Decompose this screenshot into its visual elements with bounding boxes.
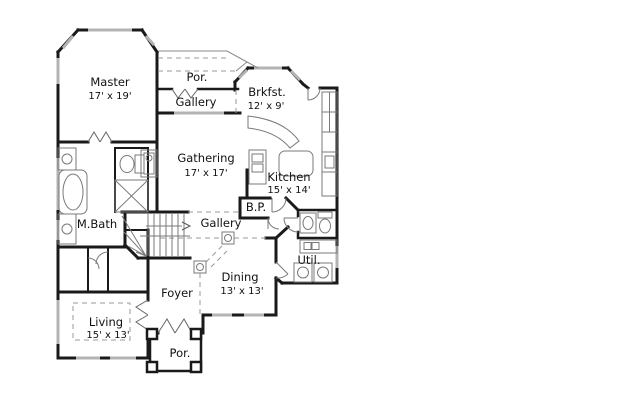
room-label-porch-bottom: Por. <box>170 346 191 360</box>
room-label-gathering: Gathering <box>177 151 234 165</box>
room-dims-gathering: 17' x 17' <box>184 168 227 179</box>
door-front-entry <box>158 319 192 333</box>
room-label-foyer: Foyer <box>161 286 193 300</box>
dashed-dining-arch <box>206 246 227 267</box>
room-dims-breakfast: 12' x 9' <box>248 101 285 112</box>
window-living <box>58 300 136 358</box>
powder-sink-icon <box>300 213 316 233</box>
room-label-living: Living <box>89 315 123 329</box>
door-breakfast-exterior <box>308 88 320 100</box>
door-closet <box>88 252 108 269</box>
room-dims-living: 15' x 13' <box>86 330 129 341</box>
wall-stairs <box>122 212 190 258</box>
kitchen-cabinets <box>322 92 337 196</box>
porch-top-outline <box>158 51 258 71</box>
door-kitchen-hall <box>272 198 286 212</box>
door-bp <box>268 218 279 229</box>
room-label-master: Master <box>90 75 130 89</box>
toilet-icon-powder <box>318 212 332 233</box>
door-utility <box>276 262 288 278</box>
room-label-dining: Dining <box>221 270 258 284</box>
porch-roof-lines <box>158 51 258 71</box>
room-label-gallery-mid: Gallery <box>201 216 242 230</box>
kitchen-range-sink <box>249 150 266 184</box>
vanity-sink-icon <box>58 148 76 244</box>
utility-counter <box>300 240 337 253</box>
stairs <box>122 214 190 256</box>
room-dims-kitchen: 15' x 14' <box>267 185 310 196</box>
room-dims-dining: 13' x 13' <box>220 286 263 297</box>
bathtub-icon <box>59 170 87 214</box>
kitchen-curved-counter <box>248 116 299 148</box>
room-label-breakfast: Brkfst. <box>248 85 285 99</box>
room-label-gallery-top: Gallery <box>176 95 217 109</box>
wall-closet-dividers <box>88 230 148 292</box>
room-label-utility: Util. <box>298 253 321 267</box>
wall-dining-bottom <box>203 315 276 333</box>
room-dims-master: 17' x 19' <box>88 91 131 102</box>
wall-master-bay <box>58 30 157 52</box>
floor-plan-canvas: Master 17' x 19' Por. Gallery Brkfst. 12… <box>0 0 620 415</box>
room-label-porch-top: Por. <box>187 70 208 84</box>
door-master-double <box>88 132 112 142</box>
room-label-kitchen: Kitchen <box>267 170 310 184</box>
floor-plan-svg: Master 17' x 19' Por. Gallery Brkfst. 12… <box>0 0 620 415</box>
room-label-bp: B.P. <box>246 200 266 214</box>
toilet-icon-mbath <box>120 155 144 173</box>
door-living-double <box>136 300 148 330</box>
room-label-mbath: M.Bath <box>77 217 117 231</box>
shower-icon <box>115 180 148 212</box>
